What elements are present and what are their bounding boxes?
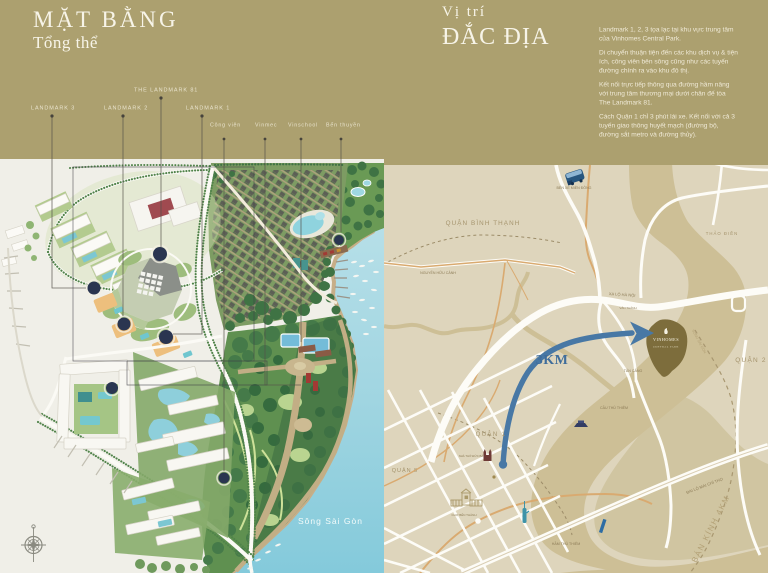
svg-text:CHỢ BẾN THÀNH: CHỢ BẾN THÀNH: [451, 512, 476, 517]
svg-text:HẦM THỦ THIÊM: HẦM THỦ THIÊM: [552, 541, 580, 546]
svg-text:Sông Sài Gòn: Sông Sài Gòn: [298, 516, 363, 526]
svg-text:CẦU THỦ THIÊM: CẦU THỦ THIÊM: [600, 405, 628, 410]
svg-text:CENTRAL PARK: CENTRAL PARK: [653, 346, 679, 349]
svg-text:QUẬN BÌNH THẠNH: QUẬN BÌNH THẠNH: [446, 218, 521, 227]
svg-text:THẢO ĐIỀN: THẢO ĐIỀN: [706, 231, 738, 236]
svg-text:BẾN XE MIỀN ĐÔNG: BẾN XE MIỀN ĐÔNG: [557, 185, 592, 190]
svg-text:3KM: 3KM: [536, 353, 569, 368]
svg-text:TÂN CẢNG: TÂN CẢNG: [624, 368, 643, 373]
svg-text:NGUYỄN HỮU CẢNH: NGUYỄN HỮU CẢNH: [420, 270, 456, 275]
svg-text:VĂN THÁNH: VĂN THÁNH: [619, 306, 636, 310]
svg-text:NHÀ THỜ ĐỨC BÀ: NHÀ THỜ ĐỨC BÀ: [459, 453, 484, 458]
svg-text:VINHOMES: VINHOMES: [653, 337, 679, 342]
svg-text:QUẬN 2: QUẬN 2: [735, 355, 766, 364]
svg-text:QUẬN 1: QUẬN 1: [476, 431, 507, 438]
svg-text:QUẬN 5: QUẬN 5: [392, 467, 418, 474]
